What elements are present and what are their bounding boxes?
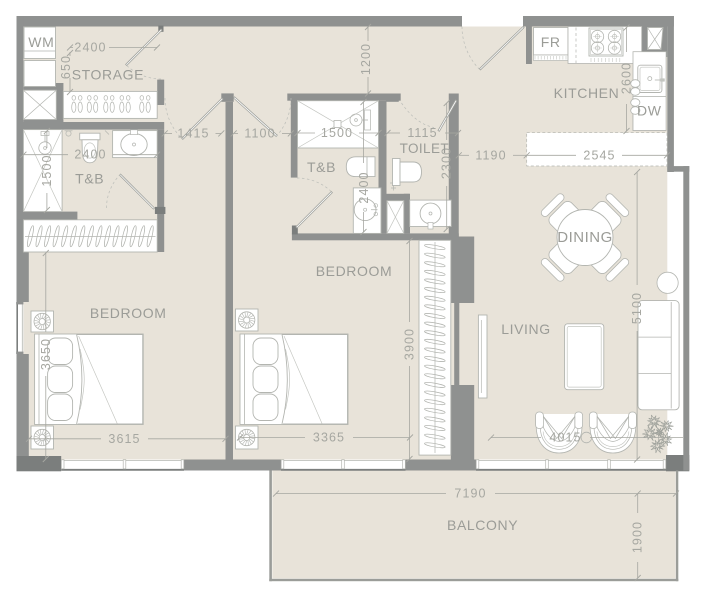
svg-text:1100: 1100: [244, 126, 275, 140]
svg-text:2600: 2600: [620, 62, 634, 94]
svg-text:DW: DW: [637, 102, 662, 118]
svg-text:WM: WM: [28, 34, 54, 50]
svg-text:LIVING: LIVING: [501, 321, 551, 337]
svg-text:3615: 3615: [108, 432, 140, 446]
svg-text:FR: FR: [541, 34, 561, 50]
svg-text:1190: 1190: [475, 148, 506, 162]
svg-text:1900: 1900: [631, 521, 645, 553]
svg-text:BEDROOM: BEDROOM: [316, 263, 393, 279]
svg-text:3650: 3650: [39, 338, 53, 370]
svg-text:1500: 1500: [321, 126, 353, 140]
svg-text:STORAGE: STORAGE: [72, 67, 144, 83]
svg-text:T&B: T&B: [75, 171, 104, 187]
svg-text:DINING: DINING: [557, 229, 613, 246]
svg-text:5100: 5100: [630, 292, 644, 324]
svg-text:1200: 1200: [359, 43, 373, 75]
svg-text:2400: 2400: [357, 171, 371, 203]
svg-text:T&B: T&B: [307, 159, 336, 175]
svg-text:KITCHEN: KITCHEN: [554, 85, 620, 101]
svg-text:2545: 2545: [583, 148, 615, 162]
svg-text:TOILET: TOILET: [400, 141, 449, 156]
svg-text:7190: 7190: [454, 487, 486, 501]
svg-text:3365: 3365: [313, 431, 345, 445]
svg-text:1415: 1415: [177, 126, 209, 140]
svg-text:2400: 2400: [74, 41, 106, 55]
svg-text:BEDROOM: BEDROOM: [90, 305, 167, 321]
svg-text:2400: 2400: [74, 148, 106, 162]
svg-text:1115: 1115: [407, 126, 437, 140]
svg-text:4015: 4015: [549, 431, 581, 445]
svg-text:BALCONY: BALCONY: [447, 517, 518, 533]
svg-text:1500: 1500: [40, 154, 54, 186]
svg-text:3900: 3900: [403, 328, 417, 360]
